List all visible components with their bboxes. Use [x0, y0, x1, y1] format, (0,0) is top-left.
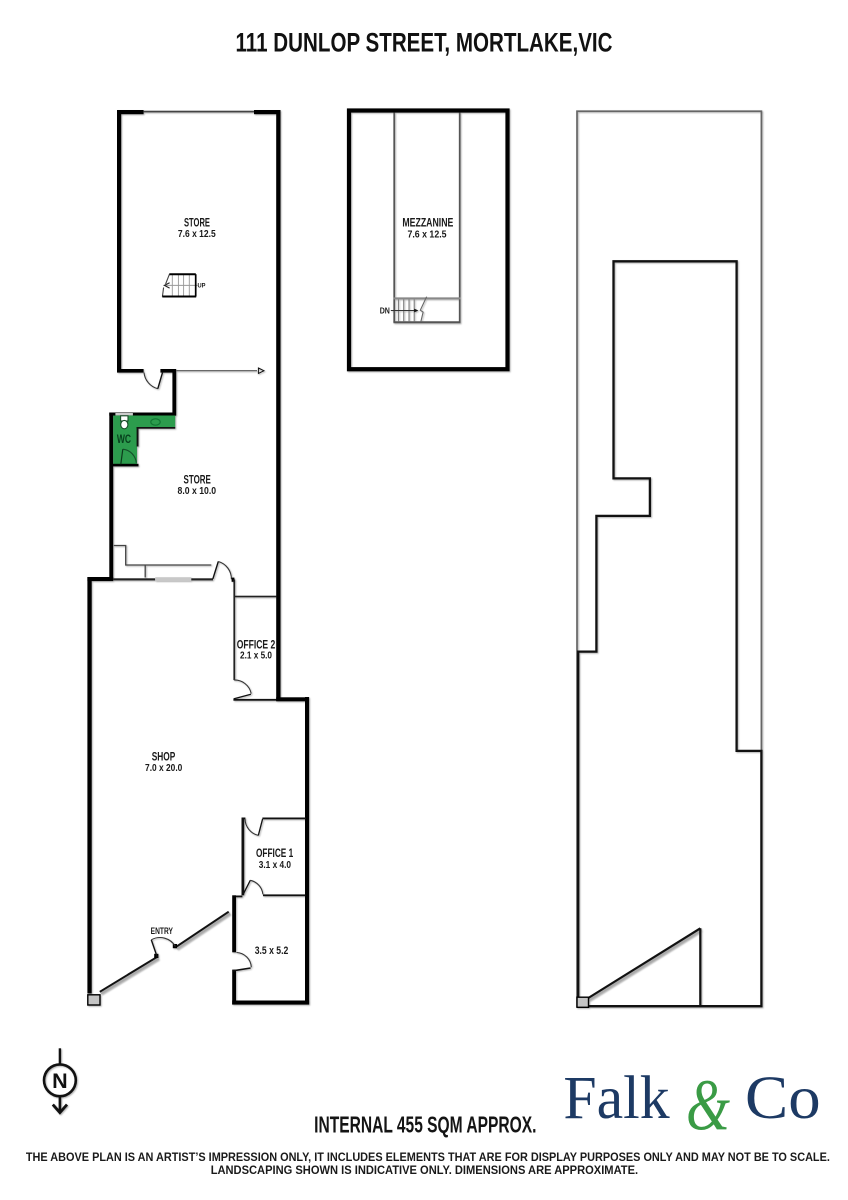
svg-text:3.1 x 4.0: 3.1 x 4.0	[259, 859, 291, 871]
svg-text:7.6 x 12.5: 7.6 x 12.5	[407, 228, 446, 240]
svg-text:UP: UP	[198, 284, 206, 290]
svg-text:7.6 x 12.5: 7.6 x 12.5	[178, 228, 216, 240]
svg-text:ENTRY: ENTRY	[151, 926, 174, 937]
svg-text:Falk: Falk	[563, 1065, 670, 1132]
svg-text:THE ABOVE PLAN IS AN ARTIST’S: THE ABOVE PLAN IS AN ARTIST’S IMPRESSION…	[26, 1150, 830, 1164]
svg-text:N: N	[52, 1069, 68, 1093]
svg-text:2.1 x 5.0: 2.1 x 5.0	[240, 650, 272, 662]
svg-text:&: &	[686, 1065, 730, 1146]
svg-text:DN: DN	[380, 306, 391, 315]
svg-text:3.5 x 5.2: 3.5 x 5.2	[255, 945, 289, 957]
svg-text:111 DUNLOP STREET, MORTLAKE,VI: 111 DUNLOP STREET, MORTLAKE,VIC	[236, 27, 613, 57]
svg-text:INTERNAL 455 SQM APPROX.: INTERNAL 455 SQM APPROX.	[314, 1111, 536, 1137]
svg-text:Co: Co	[745, 1065, 821, 1132]
svg-text:LANDSCAPING SHOWN IS INDICATIV: LANDSCAPING SHOWN IS INDICATIVE ONLY. DI…	[211, 1163, 638, 1177]
svg-text:8.0 x 10.0: 8.0 x 10.0	[178, 485, 217, 497]
svg-text:7.0 x 20.0: 7.0 x 20.0	[145, 762, 182, 774]
svg-text:WC: WC	[117, 432, 131, 446]
